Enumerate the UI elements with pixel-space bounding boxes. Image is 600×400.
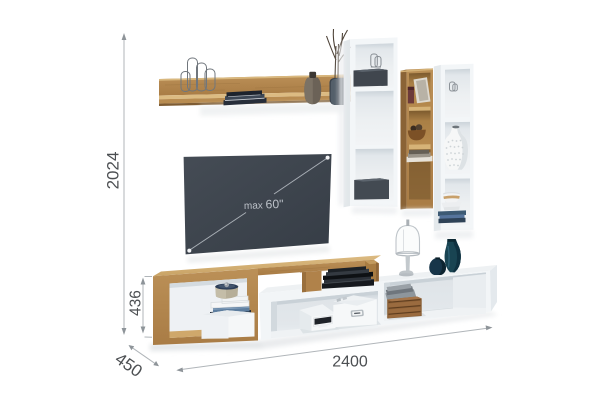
- svg-text:2024: 2024: [104, 152, 123, 190]
- svg-text:2400: 2400: [332, 354, 368, 371]
- svg-text:436: 436: [128, 290, 145, 316]
